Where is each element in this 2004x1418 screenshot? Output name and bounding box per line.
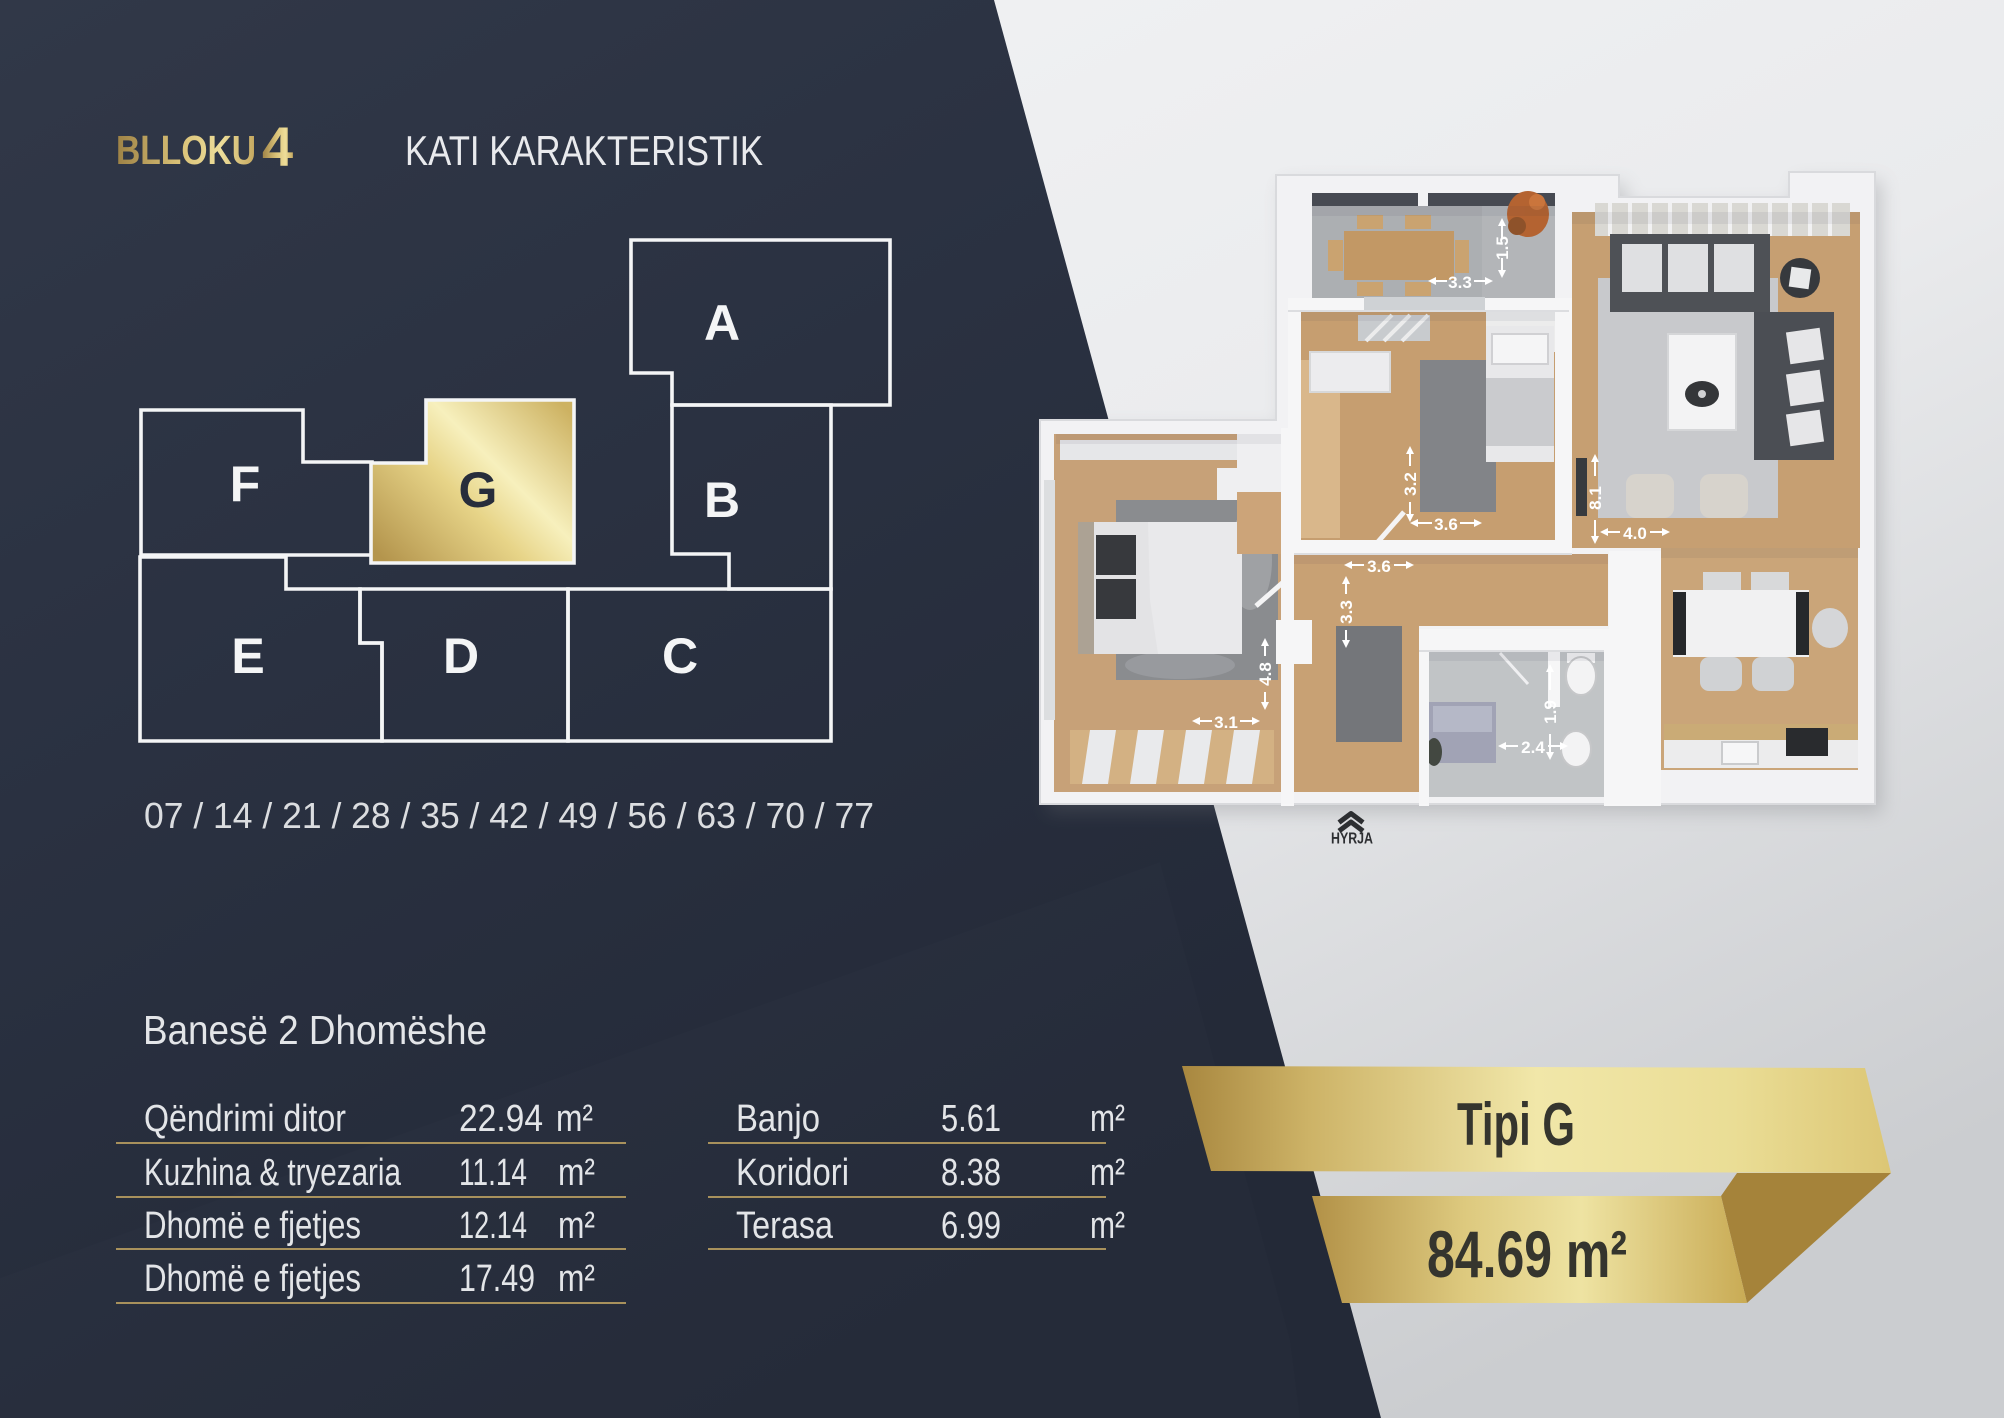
svg-text:11.14: 11.14 xyxy=(459,1152,527,1194)
svg-text:Banesë 2 Dhomëshe: Banesë 2 Dhomëshe xyxy=(143,1007,487,1053)
svg-text:Tipi G: Tipi G xyxy=(1457,1091,1575,1158)
svg-text:3.6: 3.6 xyxy=(1367,557,1391,576)
svg-text:KATI KARAKTERISTIK: KATI KARAKTERISTIK xyxy=(405,127,763,174)
svg-text:m²: m² xyxy=(558,1205,595,1247)
svg-text:8.1: 8.1 xyxy=(1586,486,1605,510)
svg-text:Banjo: Banjo xyxy=(736,1098,820,1140)
svg-text:3.1: 3.1 xyxy=(1214,713,1238,732)
svg-text:G: G xyxy=(459,462,498,518)
svg-text:5.61: 5.61 xyxy=(941,1098,1001,1140)
svg-text:m²: m² xyxy=(1090,1098,1125,1140)
svg-text:Qëndrimi ditor: Qëndrimi ditor xyxy=(144,1098,346,1140)
svg-text:C: C xyxy=(662,628,698,684)
svg-text:3.2: 3.2 xyxy=(1401,472,1420,496)
svg-text:m²: m² xyxy=(1090,1205,1125,1247)
svg-text:6.99: 6.99 xyxy=(941,1205,1001,1247)
svg-text:8.38: 8.38 xyxy=(941,1152,1001,1194)
svg-text:m²: m² xyxy=(558,1152,595,1194)
svg-text:Koridori: Koridori xyxy=(736,1152,849,1194)
svg-text:Kuzhina & tryezaria: Kuzhina & tryezaria xyxy=(144,1152,402,1194)
svg-text:E: E xyxy=(231,628,264,684)
svg-text:m²: m² xyxy=(1090,1152,1125,1194)
svg-text:m²: m² xyxy=(556,1098,593,1140)
svg-text:3.6: 3.6 xyxy=(1434,515,1458,534)
svg-text:3.3: 3.3 xyxy=(1448,273,1472,292)
svg-text:4.8: 4.8 xyxy=(1256,662,1275,686)
svg-text:F: F xyxy=(230,456,261,512)
svg-text:1.9: 1.9 xyxy=(1541,700,1560,724)
svg-text:84.69 m²: 84.69 m² xyxy=(1427,1217,1627,1291)
svg-text:07 / 14 / 21 / 28 / 35 / 42 /: 07 / 14 / 21 / 28 / 35 / 42 / 49 / 56 / … xyxy=(144,795,874,836)
svg-text:D: D xyxy=(443,628,479,684)
svg-text:m²: m² xyxy=(558,1258,595,1300)
svg-text:4: 4 xyxy=(262,115,293,178)
svg-text:4.0: 4.0 xyxy=(1623,524,1647,543)
svg-text:BLLOKU: BLLOKU xyxy=(116,127,256,173)
svg-text:1.5: 1.5 xyxy=(1493,236,1512,260)
svg-text:12.14: 12.14 xyxy=(459,1205,527,1247)
svg-text:Dhomë e fjetjes: Dhomë e fjetjes xyxy=(144,1205,361,1247)
svg-text:HYRJA: HYRJA xyxy=(1331,831,1373,848)
svg-text:2.4: 2.4 xyxy=(1521,738,1545,757)
svg-text:22.94: 22.94 xyxy=(459,1098,543,1140)
svg-text:17.49: 17.49 xyxy=(459,1258,535,1300)
svg-text:Dhomë e fjetjes: Dhomë e fjetjes xyxy=(144,1258,361,1300)
svg-text:A: A xyxy=(704,295,740,351)
svg-text:3.3: 3.3 xyxy=(1337,600,1356,624)
svg-text:B: B xyxy=(704,472,740,528)
svg-text:Terasa: Terasa xyxy=(736,1205,834,1247)
